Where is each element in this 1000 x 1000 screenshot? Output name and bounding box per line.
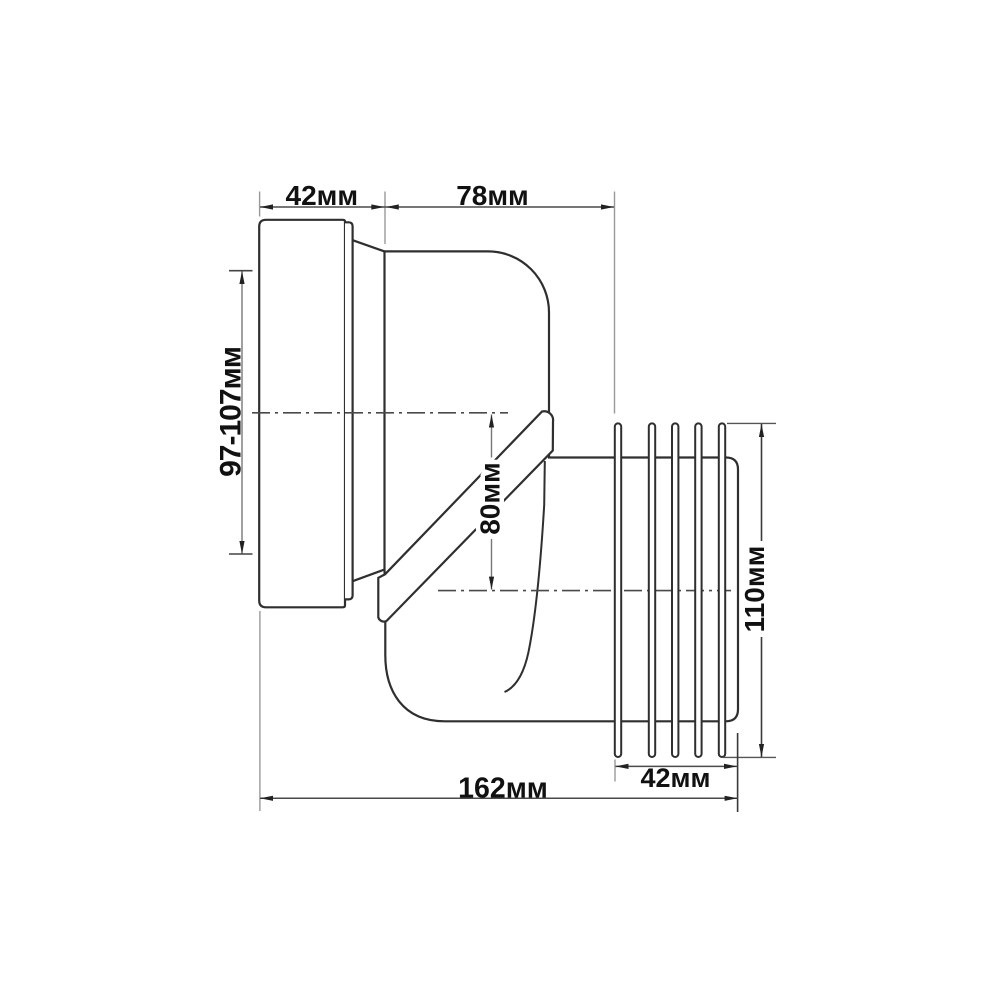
svg-text:78мм: 78мм [456,180,529,211]
svg-text:42мм: 42мм [641,763,711,793]
svg-text:162мм: 162мм [458,773,548,805]
svg-text:80мм: 80мм [475,462,506,535]
svg-text:42мм: 42мм [286,180,359,211]
svg-text:97-107мм: 97-107мм [215,347,248,477]
svg-text:110мм: 110мм [739,546,770,633]
